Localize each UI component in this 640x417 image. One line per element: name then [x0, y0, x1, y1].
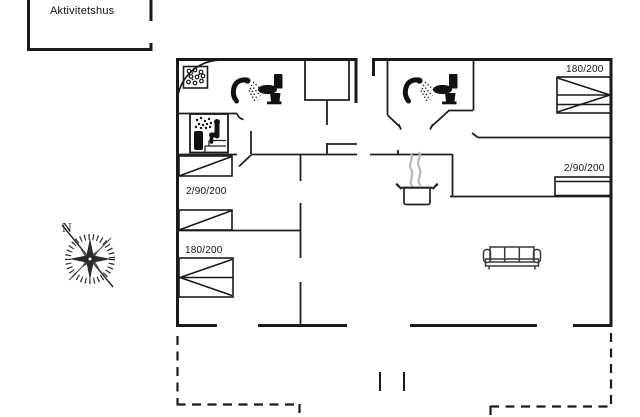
bed-size-label-left-double: 180/200: [185, 246, 223, 256]
bed-symbols: [179, 77, 611, 297]
bed-size-label-right-bunk: 2/90/200: [564, 164, 605, 174]
compass-north-label: N: [62, 221, 72, 235]
terrace-outline-left: [177, 336, 301, 417]
shower-icon: [405, 78, 435, 102]
terrace-step-marks: [380, 372, 404, 391]
bed-size-label-right-double: 180/200: [566, 65, 604, 75]
sauna-person: [212, 119, 221, 142]
corner-shower: [177, 60, 221, 104]
bunk-bed-right: [555, 177, 611, 196]
cooking-pot-icon: [396, 153, 439, 205]
single-bed-2: [179, 210, 232, 230]
right-wing-interior-walls: [370, 60, 611, 197]
toilet-icon: [258, 74, 283, 104]
sauna-icon: [190, 114, 228, 153]
bed-size-label-left-twin: 2/90/200: [186, 187, 227, 197]
double-bed-left: [179, 258, 233, 297]
floor-plan-page: Aktivitetshus N 2/90/200 180/200 180/200…: [0, 0, 640, 417]
double-bed-right: [557, 77, 611, 113]
floor-plan-drawing: [0, 0, 640, 417]
terrace-outline-right: [490, 333, 612, 417]
toilet-icon: [433, 74, 458, 104]
annex-label: Aktivitetshus: [50, 6, 114, 17]
single-bed-1: [179, 156, 232, 176]
sofa-icon: [484, 247, 541, 270]
steam: [410, 153, 420, 186]
